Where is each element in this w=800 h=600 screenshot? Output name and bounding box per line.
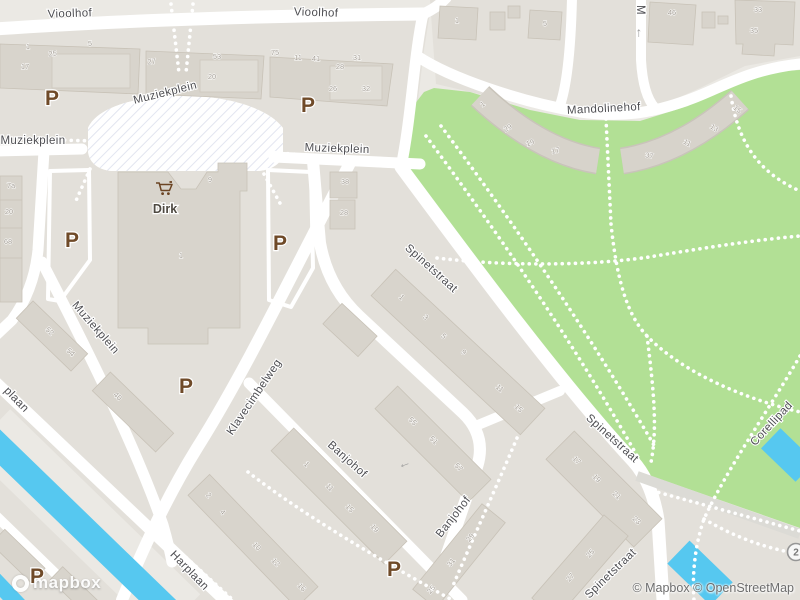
parking-icon: P bbox=[65, 229, 79, 252]
map-canvas[interactable]: 1525172753207511413128263215463335129191… bbox=[0, 0, 800, 600]
attribution[interactable]: © Mapbox © OpenStreetMap bbox=[632, 581, 794, 595]
house-number: 75 bbox=[271, 48, 279, 57]
house-number: 20 bbox=[208, 72, 216, 81]
oneway-arrow-icon: → bbox=[629, 27, 644, 40]
house-number: 31 bbox=[353, 53, 361, 62]
house-number: 27 bbox=[147, 56, 157, 66]
house-number: 1 bbox=[455, 16, 459, 25]
house-number: 46 bbox=[668, 8, 676, 17]
house-number: 68 bbox=[4, 237, 12, 246]
poi-label-dirk: Dirk bbox=[153, 202, 177, 216]
street-label: Muziekplein bbox=[0, 135, 65, 147]
house-number: 26 bbox=[329, 84, 337, 93]
street-label: M bbox=[634, 5, 646, 15]
parking-icon: P bbox=[179, 375, 193, 398]
parking-icon: P bbox=[45, 87, 59, 110]
house-number: 7a bbox=[7, 181, 16, 190]
parking-icon: P bbox=[301, 94, 315, 117]
street-label: Muziekplein bbox=[304, 142, 370, 156]
house-number: 32 bbox=[362, 84, 370, 93]
house-number: 35 bbox=[750, 26, 758, 35]
house-number: 38 bbox=[341, 177, 349, 186]
house-number: 1 bbox=[179, 251, 183, 260]
mapbox-logo-text: mapbox bbox=[33, 573, 101, 593]
house-number: 5 bbox=[543, 19, 547, 28]
house-number: 28 bbox=[336, 62, 344, 71]
house-number: 5 bbox=[88, 39, 92, 48]
house-number: 33 bbox=[754, 5, 762, 14]
house-number: 1 bbox=[26, 42, 30, 51]
house-number: 20 bbox=[5, 207, 13, 216]
mapbox-logo-icon bbox=[12, 575, 29, 592]
house-number: 9 bbox=[208, 175, 212, 184]
circle-marker-text: 2 bbox=[793, 548, 799, 559]
street-label: Vioolhof bbox=[47, 7, 92, 21]
house-number: 53 bbox=[213, 52, 221, 61]
house-number: 11 bbox=[294, 53, 302, 62]
street-label: Vioolhof bbox=[294, 6, 339, 20]
parking-icon: P bbox=[387, 558, 401, 581]
house-number: 37 bbox=[645, 150, 655, 160]
parking-icon: P bbox=[273, 232, 287, 255]
house-number: 17 bbox=[21, 62, 29, 71]
house-number: 25 bbox=[48, 48, 58, 58]
map-tiles: 1525172753207511413128263215463335129191… bbox=[0, 0, 800, 600]
house-number: 41 bbox=[312, 54, 320, 63]
house-number: 28 bbox=[340, 208, 348, 217]
mapbox-logo[interactable]: mapbox bbox=[12, 573, 101, 593]
attribution-text: © Mapbox © OpenStreetMap bbox=[632, 581, 794, 595]
